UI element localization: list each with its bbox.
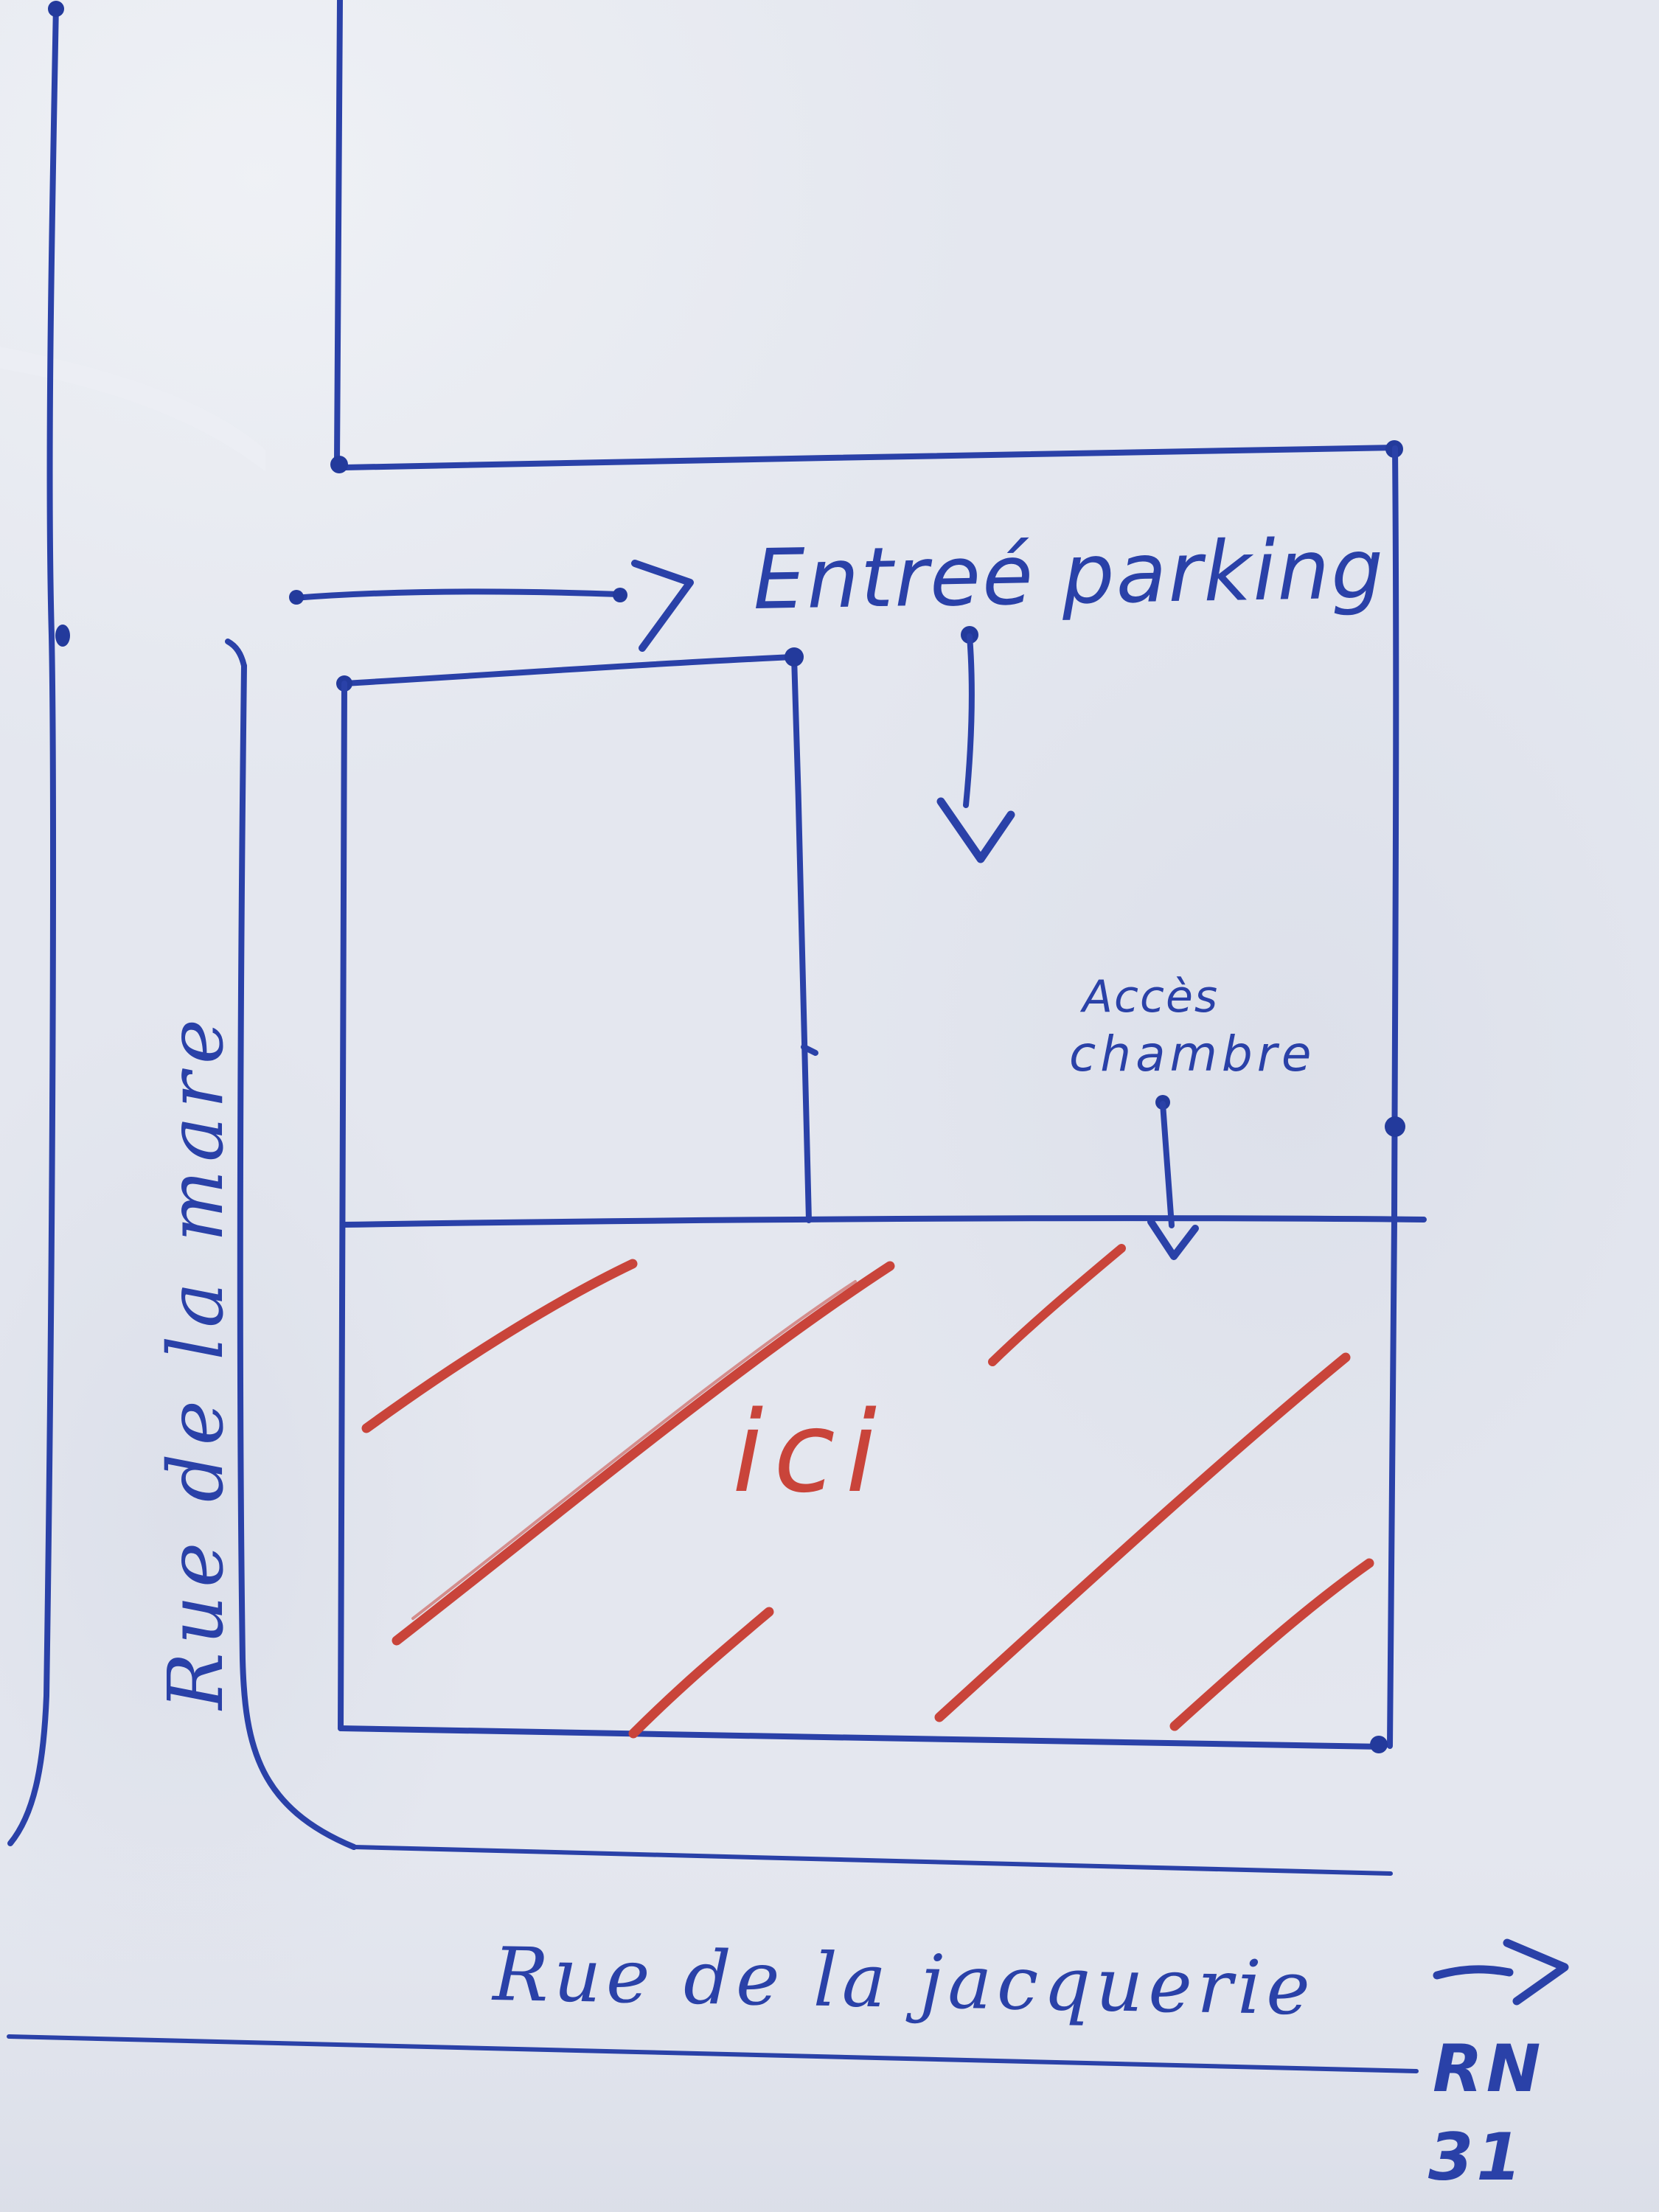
- room-access-label-line2: chambre: [1069, 1026, 1316, 1082]
- pen-blob: [1370, 1736, 1388, 1753]
- pen-blob: [785, 647, 804, 667]
- pen-blob: [48, 1, 64, 17]
- pen-blob: [330, 456, 348, 473]
- pen-blob: [1385, 1116, 1405, 1137]
- parking-entrance-label: Entreé parking: [752, 521, 1385, 628]
- hand-drawn-map: Entreé parking Accès chambre Rue de la m…: [0, 0, 1659, 2212]
- street-left-label: Rue de la mare: [152, 1011, 240, 1711]
- block-left-edge: [341, 684, 344, 1728]
- highway-label-line1: RN: [1433, 2031, 1544, 2107]
- highway-label-line2: 31: [1428, 2119, 1524, 2195]
- here-marker-label: ici: [732, 1387, 887, 1517]
- pen-blob: [55, 625, 70, 647]
- room-access-label-line1: Accès: [1079, 971, 1219, 1023]
- street-bottom-label: Rue de la jacquerie: [491, 1931, 1316, 2031]
- paper-background: [0, 0, 1659, 2212]
